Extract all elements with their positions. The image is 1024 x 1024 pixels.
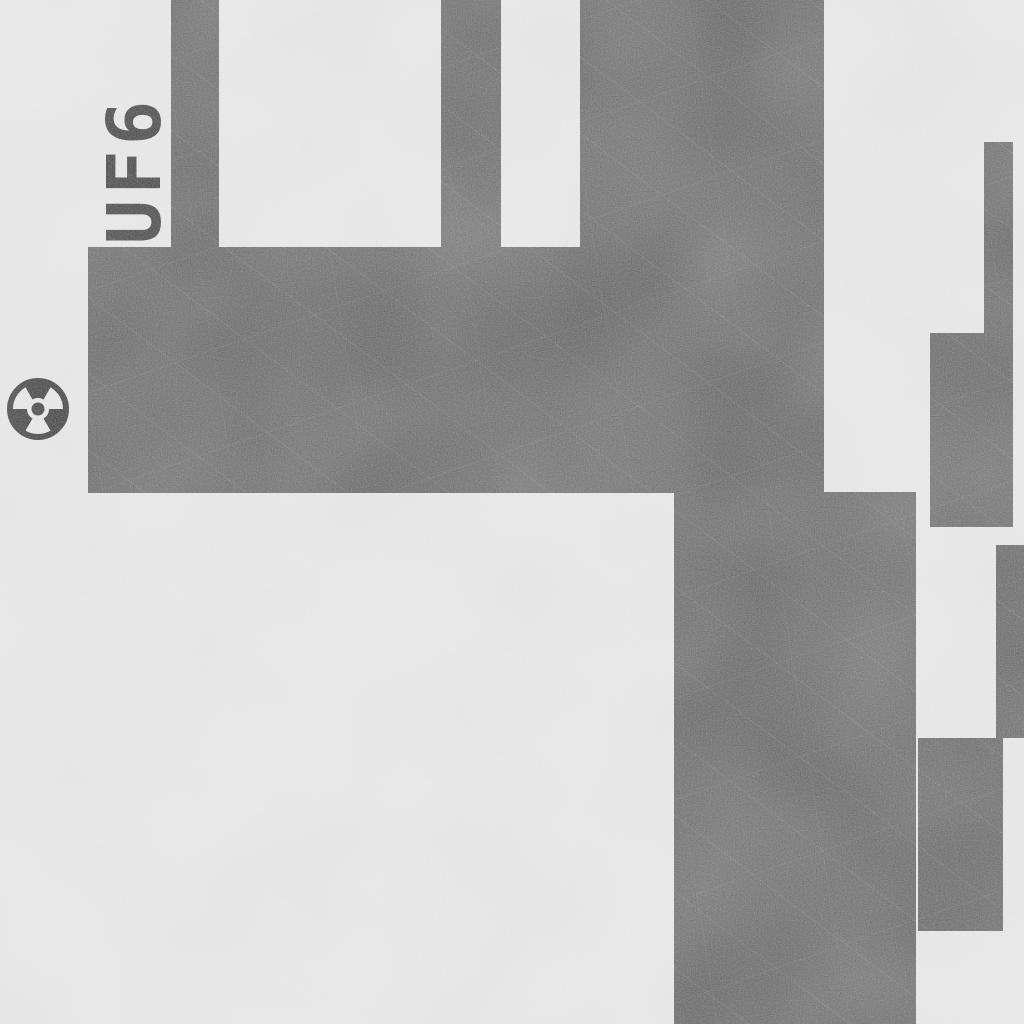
- wall-block: [918, 738, 1003, 931]
- radiation-center-dot: [32, 403, 45, 416]
- uf6-label: UF6: [102, 90, 168, 250]
- radiation-icon: [6, 377, 70, 441]
- wall-block: [996, 545, 1024, 738]
- wall-block: [441, 0, 501, 248]
- wall-block: [930, 333, 1013, 527]
- wall-block: [580, 0, 824, 248]
- level-map: UF6: [0, 0, 1024, 1024]
- wall-block: [674, 492, 916, 1024]
- wall-block: [171, 0, 219, 248]
- wall-block: [984, 142, 1013, 334]
- wall-block: [88, 247, 824, 493]
